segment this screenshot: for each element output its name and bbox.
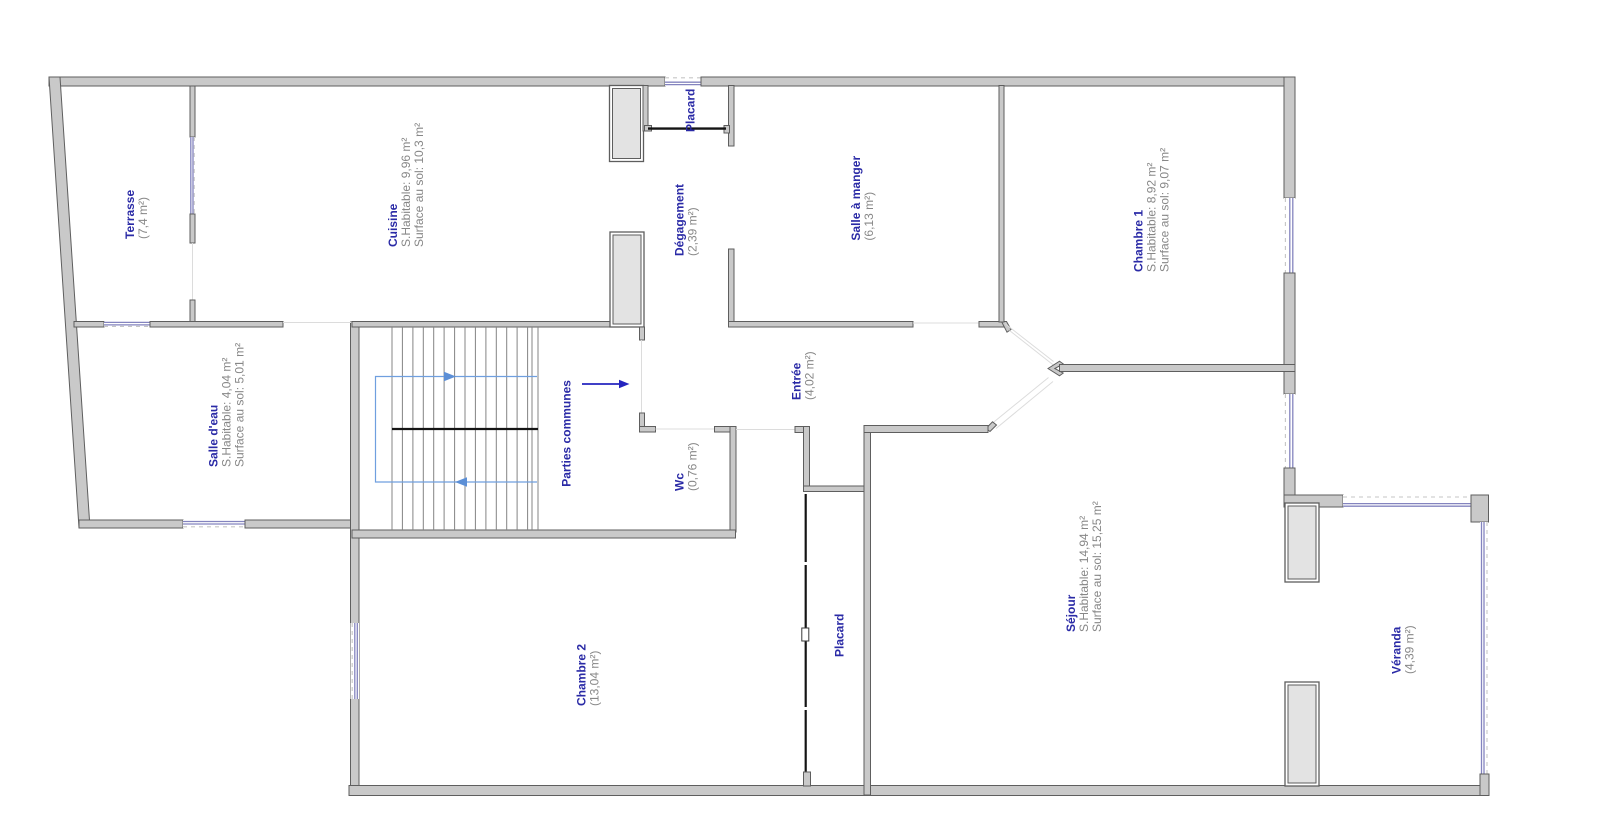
svg-text:Placard: Placard bbox=[684, 89, 698, 132]
svg-text:Véranda (4,39 m²): Véranda (4,39 m²) bbox=[1390, 623, 1417, 674]
svg-text:Parties communes: Parties communes bbox=[560, 380, 574, 487]
svg-text:Placard: Placard bbox=[833, 614, 847, 657]
